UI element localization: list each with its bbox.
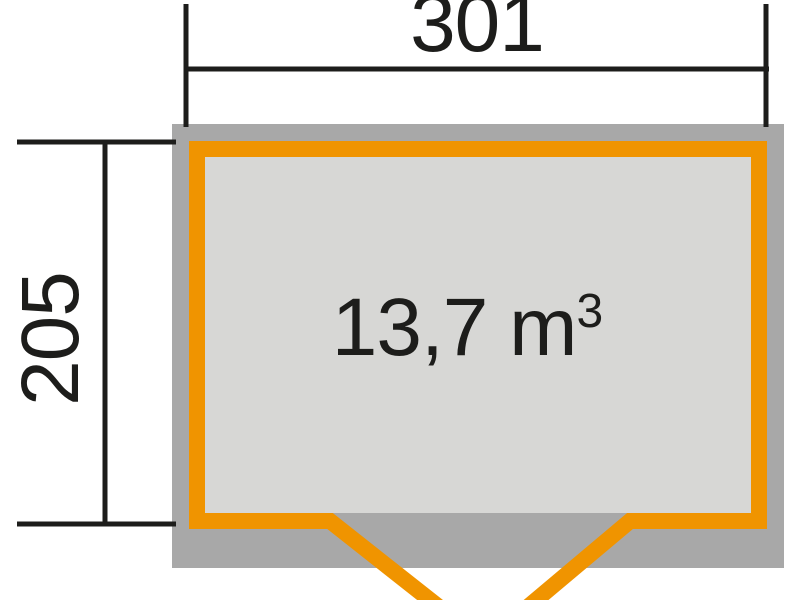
depth-dimension-label: 205 — [5, 272, 96, 406]
width-dimension-label: 301 — [410, 0, 544, 69]
floor-plan-canvas: 301 205 13,7 m3 — [0, 0, 800, 600]
volume-label: 13,7 m3 — [332, 282, 602, 373]
floor-plan-diagram: 301 205 13,7 m3 — [0, 0, 800, 600]
volume-exponent: 3 — [576, 285, 602, 338]
volume-value: 13,7 m — [332, 282, 577, 373]
